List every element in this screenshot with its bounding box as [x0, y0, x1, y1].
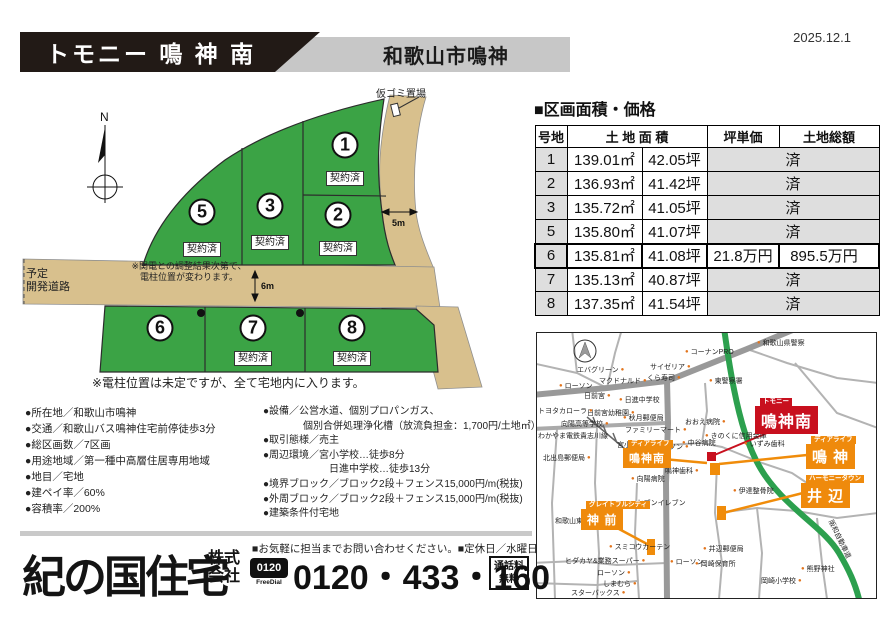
map-label: 向陽高等学校 ●: [561, 420, 609, 429]
freedial-number: 0120: [250, 558, 288, 578]
map-label-text: 伊達整骨院: [739, 488, 774, 495]
map-label: ● 東警察署: [709, 377, 743, 386]
detail-item: ●建築条件付宅地: [263, 507, 533, 522]
planned-road-label: 予定 開発道路: [26, 268, 70, 294]
badge-tag: グレイトフルシティ: [586, 501, 650, 509]
tollfree-line2: 無料: [494, 573, 524, 586]
sold-label-lot-2: 契約済: [319, 241, 357, 256]
poi-dot-icon: ●: [703, 546, 707, 552]
price-table-header: 号地 土 地 面 積 坪単価 土地総額: [535, 126, 879, 148]
cell-area-tsubo: 41.05坪: [642, 196, 707, 220]
property-badge: ハーモニータウン 井 辺: [801, 483, 850, 508]
price-row: 7 135.13㎡ 40.87坪済: [535, 268, 879, 292]
cell-status: 済: [707, 220, 879, 244]
map-label: しまむら ●: [603, 580, 637, 589]
detail-item: ●周辺環境／宮小学校…徒歩8分: [263, 449, 533, 464]
map-label-text: わかやま電鉄貴志川線: [538, 433, 608, 440]
cell-status: 済: [707, 196, 879, 220]
map-label-text: ヒダカヤ&業務スーパー: [565, 558, 640, 565]
cell-area-tsubo: 40.87坪: [642, 268, 707, 292]
cell-area-m2: 135.13㎡: [567, 268, 642, 292]
poi-dot-icon: ●: [623, 415, 627, 421]
property-badge: トモニー 鳴神南: [755, 406, 818, 434]
lot-number-8: 8: [339, 315, 366, 342]
map-label-text: いずみ歯科: [750, 441, 785, 448]
map-label: スターバックス ●: [571, 589, 625, 598]
map-label-text: きのくに信用金庫: [711, 433, 767, 440]
poi-dot-icon: ●: [757, 340, 761, 346]
badge-name: 鳴 神: [806, 444, 855, 469]
company-suffix-line2: 会社: [208, 568, 240, 586]
map-label: トヨタカローラ ●: [538, 407, 593, 416]
poi-dot-icon: ●: [609, 544, 613, 550]
pole-note-line2: 電柱位置が変わります。: [124, 272, 254, 283]
map-label-text: スターバックス: [571, 590, 620, 597]
detail-item: ●交通／和歌山バス鳴神住宅前停徒歩3分: [25, 421, 260, 437]
badge-name: 鳴神南: [755, 406, 818, 434]
map-label-text: おおえ病院: [685, 419, 720, 426]
map-label: ● 岡崎保育所: [695, 560, 736, 569]
property-badge: ディアライフ 鳴 神: [806, 444, 855, 469]
badge-name: 神 前: [581, 509, 623, 530]
tollfree-line1: 通話料: [494, 560, 524, 573]
subject-property-marker: [707, 452, 716, 461]
badge-name: 鳴神南: [623, 448, 671, 468]
map-label-text: 日前宮: [584, 393, 605, 400]
detail-item: ●用途地域／第一種中高層住居専用地域: [25, 453, 260, 469]
access-map: エバグリーン ●● ローソンマクドナルド ●サイゼリア ●くら寿司 ●● コーナ…: [536, 332, 877, 599]
title-banner: トモニー 鳴 神 南: [20, 32, 320, 72]
planned-road-line2: 開発道路: [26, 281, 70, 294]
map-label: ● 向陽病院: [631, 475, 665, 484]
map-label: ● 熊野神社: [801, 565, 835, 574]
map-label-text: 東警察署: [715, 378, 743, 385]
lot-number-7: 7: [240, 315, 267, 342]
cell-area-m2: 139.01㎡: [567, 148, 642, 172]
site-plan: 5m 6m N 仮ゴミ置場 予定 開発道路 ※関電との調整結果次第で、: [20, 85, 520, 400]
badge-name: 井 辺: [801, 483, 850, 508]
date-label: 2025.12.1: [793, 30, 851, 45]
sold-label-lot-3: 契約済: [251, 235, 289, 250]
price-row: 5 135.80㎡ 41.07坪済: [535, 220, 879, 244]
property-details-right: ●設備／公営水道、個別プロパンガス、個別合併処理浄化槽（放流負担金：1,700円…: [263, 405, 533, 522]
map-label-text: 和歌山県警察: [763, 340, 805, 347]
map-label-text: 北出島郵便局: [543, 455, 585, 462]
city-label: 和歌山市鳴神: [383, 40, 509, 69]
map-label: ヒダカヤ&業務スーパー ●: [565, 557, 645, 566]
price-table-title: ■区画面積・価格: [534, 96, 878, 120]
map-label-text: 岡崎小学校: [761, 578, 796, 585]
map-label: サイゼリア ●: [650, 363, 691, 372]
badge-tag: ディアライフ: [811, 436, 856, 444]
poi-dot-icon: ●: [705, 433, 709, 439]
property-badge: グレイトフルシティ 神 前: [581, 509, 623, 530]
map-label: おおえ病院 ●: [685, 418, 726, 427]
poi-dot-icon: ●: [633, 581, 637, 587]
cell-area-m2: 135.81㎡: [567, 244, 642, 268]
map-label: 岡崎小学校 ●: [761, 577, 802, 586]
map-label-text: しまむら: [603, 581, 631, 588]
col-unit-price: 坪単価: [707, 126, 779, 148]
cell-area-tsubo: 41.08坪: [642, 244, 707, 268]
poi-dot-icon: ●: [559, 383, 563, 389]
map-label-text: 向陽高等学校: [561, 421, 603, 428]
map-label: マクドナルド ●: [599, 377, 647, 386]
poi-dot-icon: ●: [627, 570, 631, 576]
map-label-text: 鳴神歯科: [665, 468, 693, 475]
map-label: ● スミコウカーテン: [609, 543, 670, 552]
cell-area-tsubo: 41.42坪: [642, 172, 707, 196]
map-label-text: エバグリーン: [577, 367, 619, 374]
pole-dot: [296, 309, 304, 317]
map-label-text: スミコウカーテン: [615, 544, 671, 551]
map-label: ● 井辺郵便局: [703, 545, 744, 554]
map-label-text: くら寿司: [647, 375, 675, 382]
map-label-text: サイゼリア: [650, 364, 685, 371]
sold-label-lot-5: 契約済: [183, 242, 221, 257]
map-label: ● いずみ歯科: [744, 440, 785, 449]
map-label: ● 日進中学校: [619, 396, 660, 405]
map-label-text: 井辺郵便局: [709, 546, 744, 553]
map-label-text: 熊野神社: [807, 566, 835, 573]
footer-divider: [20, 531, 532, 536]
poi-dot-icon: ●: [587, 455, 591, 461]
detail-item: ●所在地／和歌山市鳴神: [25, 405, 260, 421]
cell-lot: 6: [535, 244, 567, 268]
sold-label-lot-7: 契約済: [234, 351, 272, 366]
map-compass-icon: [574, 340, 596, 362]
badge-tag: トモニー: [760, 398, 792, 406]
poi-dot-icon: ●: [687, 364, 691, 370]
map-label-text: コーナンPRO: [691, 349, 734, 356]
cell-status: 済: [707, 292, 879, 316]
cell-area-tsubo: 41.07坪: [642, 220, 707, 244]
cell-total-price: 895.5万円: [779, 244, 879, 268]
cell-status: 済: [707, 148, 879, 172]
sold-label-lot-8: 契約済: [333, 351, 371, 366]
lot-number-6: 6: [147, 315, 174, 342]
lot-number-3: 3: [257, 193, 284, 220]
cell-area-m2: 135.72㎡: [567, 196, 642, 220]
map-label: ● 和歌山県警察: [757, 339, 805, 348]
col-area: 土 地 面 積: [567, 126, 707, 148]
poi-dot-icon: ●: [619, 397, 623, 403]
company-suffix: 株式 会社: [208, 550, 240, 586]
cell-lot: 8: [535, 292, 567, 316]
detail-item: ●総区画数／7区画: [25, 437, 260, 453]
price-row: 1 139.01㎡ 42.05坪済: [535, 148, 879, 172]
pole-note-line1: ※関電との調整結果次第で、: [124, 261, 254, 272]
map-label-text: 日進中学校: [625, 397, 660, 404]
flyer-page: 和歌山市鳴神 トモニー 鳴 神 南 2025.12.1: [0, 0, 881, 621]
detail-item: ●設備／公営水道、個別プロパンガス、: [263, 405, 533, 420]
property-details-left: ●所在地／和歌山市鳴神●交通／和歌山バス鳴神住宅前停徒歩3分●総区画数／7区画●…: [25, 405, 260, 517]
map-label: 日前宮 ●: [584, 392, 611, 401]
freedial-text: FreeDial: [250, 578, 288, 588]
col-lot: 号地: [535, 126, 567, 148]
map-label-text: 向陽病院: [637, 476, 665, 483]
map-label: ローソン ●: [597, 569, 631, 578]
badge-tag: ハーモニータウン: [806, 475, 864, 483]
map-label: くら寿司 ●: [647, 374, 681, 383]
freedial-icon: 0120 FreeDial: [250, 558, 288, 592]
poi-dot-icon: ●: [589, 408, 593, 414]
map-label: ● コーナンPRO: [685, 348, 734, 357]
map-label: エバグリーン ●: [577, 366, 624, 375]
map-label-text: ローソン: [565, 383, 593, 390]
map-label-text: トヨタカローラ: [538, 408, 587, 415]
col-total-price: 土地総額: [779, 126, 879, 148]
poi-dot-icon: ●: [685, 349, 689, 355]
poi-dot-icon: ●: [682, 440, 686, 446]
width-5m-label: 5m: [392, 218, 405, 228]
pole-note-inner: ※関電との調整結果次第で、 電柱位置が変わります。: [124, 261, 254, 283]
map-label-text: 岡崎保育所: [701, 561, 736, 568]
cell-lot: 1: [535, 148, 567, 172]
cell-lot: 2: [535, 172, 567, 196]
detail-item: ●取引態様／売主: [263, 434, 533, 449]
cell-lot: 5: [535, 220, 567, 244]
price-row: 6 135.81㎡ 41.08坪21.8万円 895.5万円: [535, 244, 879, 268]
sold-label-lot-1: 契約済: [326, 171, 364, 186]
cell-lot: 3: [535, 196, 567, 220]
poi-dot-icon: ●: [709, 378, 713, 384]
price-row: 8 137.35㎡ 41.54坪済: [535, 292, 879, 316]
poi-dot-icon: ●: [670, 559, 674, 565]
poi-dot-icon: ●: [642, 558, 646, 564]
poi-dot-icon: ●: [631, 476, 635, 482]
map-label-text: 中谷病院: [688, 440, 716, 447]
lot-number-2: 2: [325, 202, 352, 229]
company-logo: 紀の国住宅: [22, 541, 227, 605]
garbage-label: 仮ゴミ置場: [376, 85, 426, 100]
poi-dot-icon: ●: [744, 441, 748, 447]
detail-item: 日進中学校…徒歩13分: [263, 463, 533, 478]
width-6m-label: 6m: [261, 281, 274, 291]
detail-item: ●境界ブロック／ブロック2段＋フェンス15,000円/m(税抜): [263, 478, 533, 493]
detail-item: ●建ペイ率／60%: [25, 485, 260, 501]
poi-dot-icon: ●: [677, 375, 681, 381]
map-label-text: マクドナルド: [599, 378, 641, 385]
cell-area-tsubo: 41.54坪: [642, 292, 707, 316]
detail-item: ●地目／宅地: [25, 469, 260, 485]
lot-number-1: 1: [332, 132, 359, 159]
poi-dot-icon: ●: [695, 561, 699, 567]
poi-dot-icon: ●: [683, 427, 687, 433]
poi-dot-icon: ●: [621, 367, 625, 373]
badge-tag: ディアライフ: [628, 440, 673, 448]
map-label: 鳴神歯科 ●: [665, 467, 699, 476]
map-label-text: ローソン: [597, 570, 625, 577]
map-label: ファミリーマート ●: [625, 426, 687, 435]
cell-area-m2: 136.93㎡: [567, 172, 642, 196]
planned-road-line1: 予定: [26, 268, 70, 281]
cell-area-m2: 137.35㎡: [567, 292, 642, 316]
map-label: ● 伊達整骨院: [733, 487, 774, 496]
page-title: トモニー 鳴 神 南: [46, 35, 256, 69]
company-suffix-line1: 株式: [208, 550, 240, 568]
detail-item: ●容積率／200%: [25, 501, 260, 517]
poi-dot-icon: ●: [622, 590, 626, 596]
detail-item: ●外周ブロック／ブロック2段＋フェンス15,000円/m(税抜): [263, 493, 533, 508]
lot-number-5: 5: [189, 199, 216, 226]
price-table: 号地 土 地 面 積 坪単価 土地総額 1 139.01㎡ 42.05坪済2 1…: [534, 125, 880, 316]
poi-dot-icon: ●: [798, 578, 802, 584]
cell-lot: 7: [535, 268, 567, 292]
map-label: 北出島郵便局 ●: [543, 454, 591, 463]
cell-area-m2: 135.80㎡: [567, 220, 642, 244]
poi-dot-icon: ●: [801, 566, 805, 572]
price-row: 2 136.93㎡ 41.42坪済: [535, 172, 879, 196]
cell-unit-price: 21.8万円: [707, 244, 779, 268]
poi-dot-icon: ●: [607, 393, 611, 399]
detail-item: 個別合併処理浄化槽（放流負担金：1,700円/土地㎡）: [263, 420, 533, 435]
map-label: ● 秋月郵便局: [623, 414, 664, 423]
price-section: ■区画面積・価格 号地 土 地 面 積 坪単価 土地総額 1 139.01㎡ 4…: [534, 96, 878, 316]
tollfree-badge: 通話料 無料: [489, 556, 529, 590]
compass-icon: [87, 125, 123, 203]
map-label: わかやま電鉄貴志川線: [538, 433, 608, 441]
poi-dot-icon: ●: [605, 421, 609, 427]
poi-dot-icon: ●: [695, 468, 699, 474]
map-label-text: 秋月郵便局: [629, 415, 664, 422]
pole-dot: [197, 309, 205, 317]
cell-status: 済: [707, 268, 879, 292]
price-table-body: 1 139.01㎡ 42.05坪済2 136.93㎡ 41.42坪済3 135.…: [535, 148, 879, 316]
map-label-text: ファミリーマート: [625, 427, 681, 434]
map-label: ● ローソン: [559, 382, 593, 391]
property-badge: ディアライフ 鳴神南: [623, 448, 671, 468]
cell-area-tsubo: 42.05坪: [642, 148, 707, 172]
poi-dot-icon: ●: [733, 488, 737, 494]
price-row: 3 135.72㎡ 41.05坪済: [535, 196, 879, 220]
poi-dot-icon: ●: [722, 419, 726, 425]
pole-note-bottom: ※電柱位置は未定ですが、全て宅地内に入ります。: [92, 374, 365, 391]
cell-status: 済: [707, 172, 879, 196]
compass-n-label: N: [100, 110, 109, 124]
